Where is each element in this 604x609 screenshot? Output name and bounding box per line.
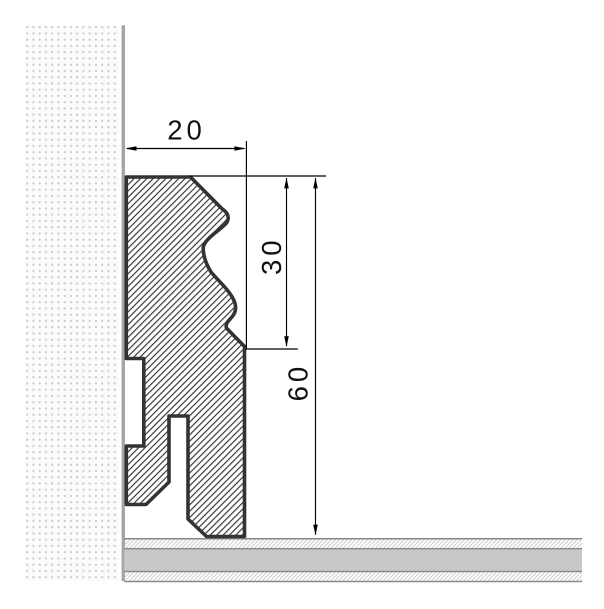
svg-text:60: 60 (283, 363, 314, 402)
svg-text:30: 30 (256, 236, 287, 275)
svg-text:20: 20 (167, 115, 206, 146)
